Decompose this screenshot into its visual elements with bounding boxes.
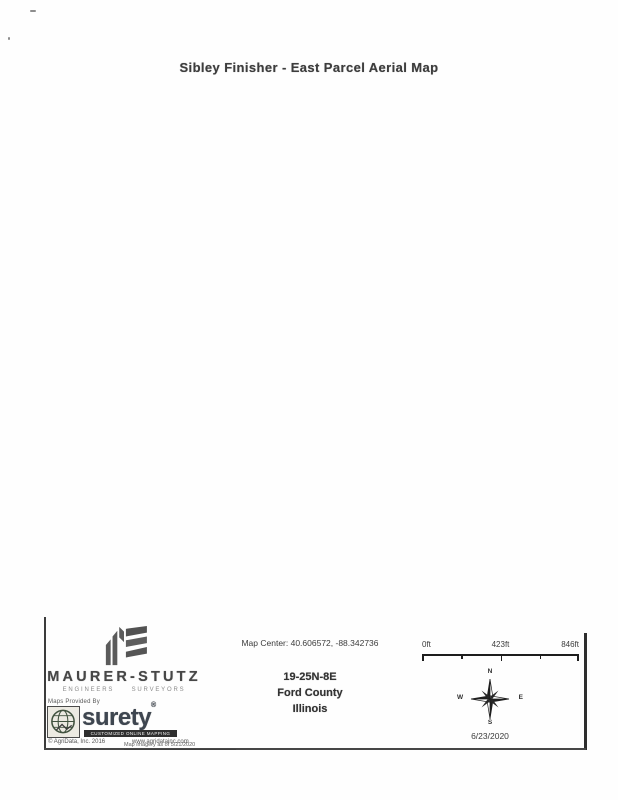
firm-name: MAURER-STUTZ <box>44 669 204 685</box>
scale-bar <box>422 654 579 662</box>
scanned-map-page: Sibley Finisher - East Parcel Aerial Map… <box>0 0 618 800</box>
footer-border-right <box>584 633 587 750</box>
page-title: Sibley Finisher - East Parcel Aerial Map <box>0 60 618 75</box>
maurer-stutz-logo-icon <box>98 625 150 667</box>
county-name: Ford County <box>240 687 380 699</box>
map-center-coordinates: Map Center: 40.606572, -88.342736 <box>225 638 395 648</box>
compass-rose: N S W E <box>450 668 530 728</box>
scale-bar-labels: 0ft 423ft 846ft <box>422 640 579 650</box>
imagery-date-note: Map imagery as of 5/21/2020 <box>124 742 236 750</box>
township-range-section: 19-25N-8E <box>240 671 380 683</box>
state-name: Illinois <box>240 703 380 715</box>
compass-star-icon <box>468 677 512 721</box>
agridata-copyright: © AgriData, Inc. 2016 <box>48 739 105 745</box>
scale-label-end: 846ft <box>561 640 579 649</box>
compass-north-label: N <box>450 668 530 675</box>
surety-globe-icon <box>47 706 80 738</box>
firm-tagline: ENGINEERS SURVEYORS <box>44 687 204 693</box>
registered-mark: ® <box>151 702 156 709</box>
compass-east-label: E <box>519 694 523 701</box>
scan-speck <box>8 37 10 40</box>
compass-west-label: W <box>457 694 463 701</box>
scan-speck <box>30 10 36 12</box>
surety-brand: surety® <box>82 702 156 732</box>
map-body-blank <box>44 90 586 615</box>
map-date: 6/23/2020 <box>450 731 530 741</box>
scale-label-mid: 423ft <box>422 640 579 649</box>
surety-strapline: CUSTOMIZED ONLINE MAPPING <box>84 730 177 737</box>
